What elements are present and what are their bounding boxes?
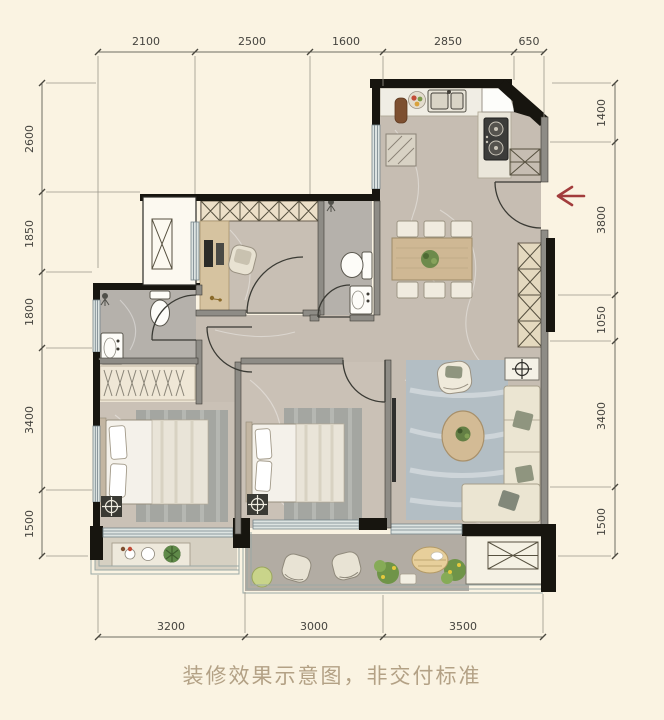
- dim-top-4: 2850: [434, 35, 462, 48]
- dim-left-5: 1500: [23, 510, 36, 538]
- dim-bottom-2: 3000: [300, 620, 328, 633]
- desk-monitor: [204, 240, 213, 267]
- dim-left-4: 3400: [23, 406, 36, 434]
- shaft-window: [191, 222, 199, 280]
- dim-top-3: 1600: [332, 35, 360, 48]
- shaft: [143, 197, 199, 285]
- stove: [484, 118, 508, 160]
- appliance-cabinet: [386, 134, 416, 166]
- desk-laptop: [216, 243, 224, 265]
- dim-bottom-1: 3200: [157, 620, 185, 633]
- dim-right-3: 1050: [595, 306, 608, 334]
- bedroom2-window: [253, 520, 359, 529]
- tv: [392, 398, 396, 482]
- kitchen-window: [372, 125, 380, 189]
- ceiling-light-living-icon: [505, 358, 539, 380]
- dim-top-1: 2100: [132, 35, 160, 48]
- master-bed: [99, 418, 208, 517]
- toilet-2: [341, 252, 372, 279]
- dim-right-4: 3400: [595, 402, 608, 430]
- dim-bottom-3: 3500: [449, 620, 477, 633]
- floorplan-page: 2100 2500 1600 2850 650 2600 1850 1800 3…: [0, 0, 664, 720]
- dim-left-3: 1800: [23, 298, 36, 326]
- dining-chairs-top: [397, 221, 472, 237]
- ceiling-light-bedroom2-icon: [247, 494, 268, 515]
- master-window: [93, 426, 100, 502]
- master-balcony-slider: [103, 528, 233, 537]
- kitchen-sink: [428, 90, 466, 112]
- closet-hangers: [100, 366, 195, 400]
- armchair: [436, 360, 473, 395]
- bedroom2-bed: [246, 422, 344, 515]
- balcony2-ottoman: [412, 547, 448, 573]
- bath1-window: [93, 300, 100, 352]
- fruit-plate: [409, 92, 426, 109]
- floorplan-drawing: 2100 2500 1600 2850 650 2600 1850 1800 3…: [0, 0, 664, 720]
- coffee-table: [442, 411, 484, 461]
- dining-chairs-bottom: [397, 282, 472, 298]
- balcony2-pouf: [252, 567, 272, 587]
- study-wardrobe: [201, 201, 318, 221]
- dim-right-2: 3800: [595, 206, 608, 234]
- dim-right-5: 1500: [595, 508, 608, 536]
- dining-centerpiece-plant: [421, 250, 439, 268]
- dim-right-1: 1400: [595, 99, 608, 127]
- dim-top-5: 650: [519, 35, 540, 48]
- dim-top-2: 2500: [238, 35, 266, 48]
- balcony2-tray: [400, 574, 416, 584]
- toilet-1: [150, 291, 170, 326]
- living-balcony-slider: [391, 524, 462, 534]
- disclaimer-caption: 装修效果示意图，非交付标准: [0, 660, 664, 690]
- entry-arrow: [558, 187, 584, 205]
- dim-left-1: 2600: [23, 125, 36, 153]
- sink-2: [350, 286, 372, 314]
- cutting-board: [395, 98, 407, 123]
- dim-left-2: 1850: [23, 220, 36, 248]
- balcony1-plant: [164, 546, 181, 563]
- ac-platform: [466, 536, 542, 584]
- ceiling-light-master-icon: [101, 496, 122, 517]
- balcony1-furniture: [112, 543, 190, 566]
- tall-cabinet: [518, 243, 542, 347]
